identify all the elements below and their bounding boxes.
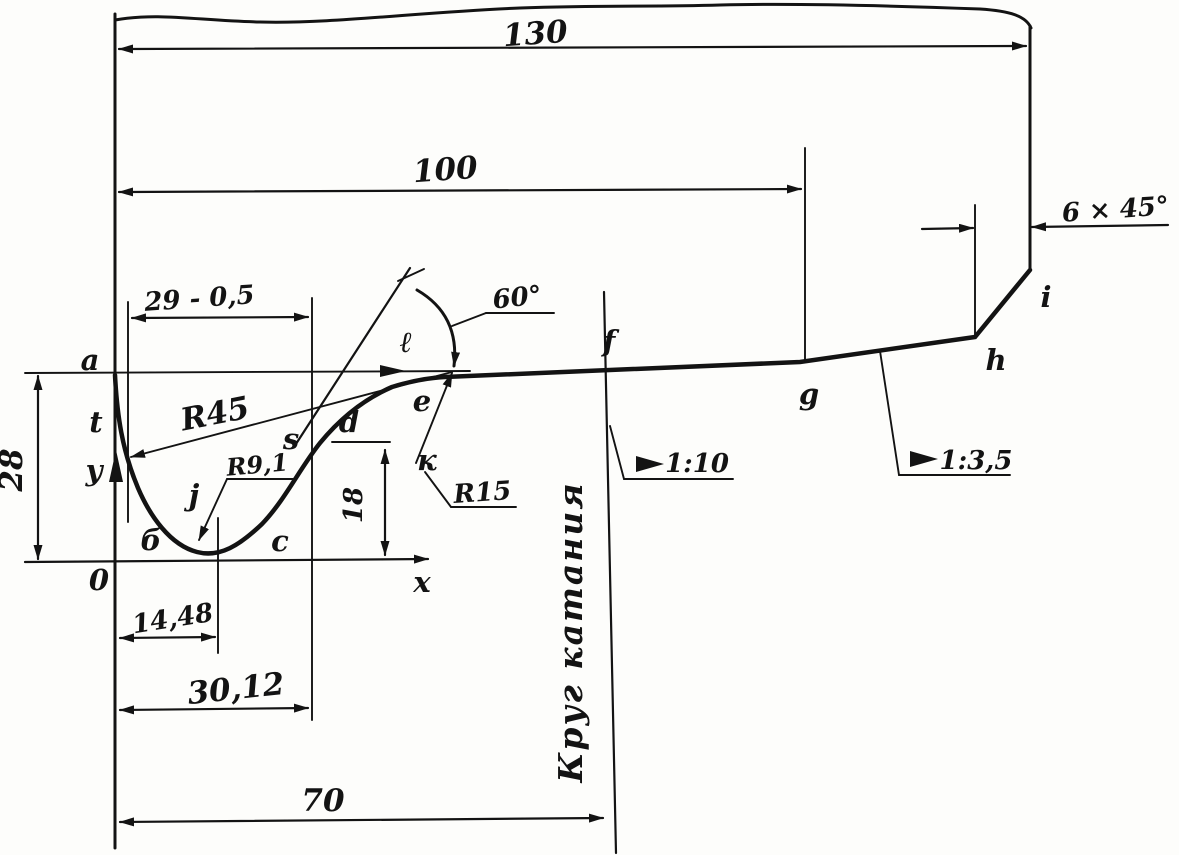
r9-leader <box>199 479 227 540</box>
point-c-label: c <box>271 524 289 558</box>
angle-60-arc <box>417 290 455 366</box>
taper-135-symbol-icon <box>910 451 938 467</box>
rolling-circle-note: Круг катания <box>551 481 590 783</box>
point-d-label: d <box>339 405 359 439</box>
x-axis-label: x <box>412 565 431 599</box>
y-axis-label: y <box>85 453 105 487</box>
dim-70-line <box>120 818 603 822</box>
point-h-label: h <box>985 343 1006 377</box>
taper-110-text: 1:10 <box>665 449 729 479</box>
angle-60-baseline-arrowhead-icon <box>380 365 406 377</box>
point-s-label: s <box>282 422 299 456</box>
dim-28-text: 28 <box>0 448 30 492</box>
r15-text: R15 <box>452 476 513 510</box>
rolling-circle-line <box>604 292 616 853</box>
dim-130-text: 130 <box>502 14 569 54</box>
point-i-label: i <box>1040 280 1051 314</box>
dim-70-text: 70 <box>301 783 345 819</box>
drawing-sheet: 130 100 6 × 45° 29 - 0,5 60° 28 18 14,48… <box>0 0 1179 855</box>
point-b-label: б <box>141 523 162 557</box>
dim-chamfer-text: 6 × 45° <box>1061 191 1170 228</box>
taper-135-text: 1:3,5 <box>940 446 1013 476</box>
angle-60-text: 60° <box>491 281 543 316</box>
wheel-profile-drawing: 130 100 6 × 45° 29 - 0,5 60° 28 18 14,48… <box>0 0 1179 855</box>
origin-label: 0 <box>89 563 109 597</box>
break-line-top <box>115 4 1031 28</box>
r9-text: R9,1 <box>224 447 289 481</box>
point-t-label: t <box>89 405 103 439</box>
taper-110-symbol-icon <box>636 456 664 472</box>
point-e-label: e <box>413 384 431 418</box>
dim-29-line <box>132 317 308 318</box>
dim-29-text: 29 - 0,5 <box>142 280 255 318</box>
point-f-label: f <box>601 324 620 358</box>
r15-leader <box>425 472 451 507</box>
y-axis-arrowhead-icon <box>109 450 123 482</box>
point-j-label: j <box>184 478 200 512</box>
dim-100-text: 100 <box>412 150 479 190</box>
flange-face-end-tick <box>398 269 424 281</box>
dim-14-text: 14,48 <box>130 598 215 640</box>
dim-100-line <box>119 189 801 192</box>
point-a-label: a <box>81 343 100 377</box>
dim-30-text: 30,12 <box>186 666 286 712</box>
point-g-label: g <box>799 377 819 411</box>
angle-60-leader <box>452 313 486 326</box>
dim-130-line <box>119 46 1026 49</box>
x-axis <box>25 559 428 562</box>
point-k-label: к <box>417 443 437 477</box>
point-l-label: ℓ <box>400 325 412 359</box>
dim-18-text: 18 <box>339 487 369 523</box>
dim-chamfer-line-left <box>922 228 973 229</box>
r45-text: R45 <box>177 390 252 439</box>
